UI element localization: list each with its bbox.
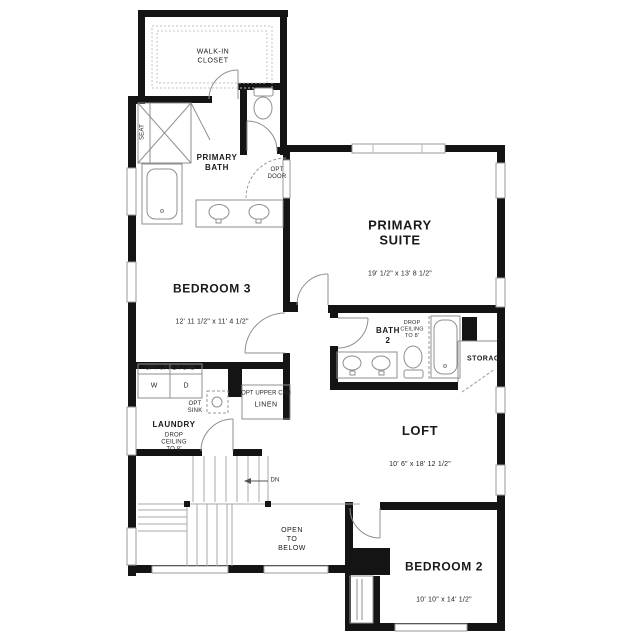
room-dims: 19' 1/2" x 13' 8 1/2" [368, 271, 432, 280]
room-label-bedroom-3: BEDROOM 3 12' 11 1/2" x 11' 4 1/2" [173, 263, 251, 348]
shower-seat-label: SEAT [140, 124, 147, 140]
opt-door-label: OPT DOOR [268, 167, 287, 181]
opt-sink-label: OPT SINK [188, 401, 203, 415]
closet-bedroom2 [350, 576, 373, 623]
washer-label: W [151, 383, 158, 392]
toilet-bath2 [404, 346, 423, 378]
room-label-bath-2: BATH 2 [376, 326, 400, 346]
drop-ceiling-note-bath2: DROP CEILING TO 8' [400, 320, 423, 339]
room-dims: 10' 10" x 14' 1/2" [405, 597, 483, 606]
vanity-primary [196, 200, 283, 227]
floor-plan-drawing [0, 0, 640, 640]
room-dims: 10' 6" x 18' 12 1/2" [389, 461, 451, 470]
opt-upper-cab-label-linen: OPT UPPER CAB [241, 390, 291, 398]
stairs-down-label: DN [270, 478, 279, 485]
room-name: BEDROOM 3 [173, 283, 251, 297]
room-name: BEDROOM 2 [405, 561, 483, 575]
bathtub-primary [142, 164, 182, 224]
room-label-loft: LOFT 10' 6" x 18' 12 1/2" [389, 404, 451, 490]
vanity-bath2 [337, 352, 397, 378]
room-name: PRIMARY SUITE [368, 219, 432, 249]
opt-upper-cab-label-laundry: OPT UPPER CAB [145, 365, 195, 373]
room-label-storage: STORAGE [467, 356, 505, 365]
room-label-linen: LINEN [254, 402, 277, 411]
room-name: LOFT [389, 424, 451, 439]
dryer-label: D [183, 383, 188, 392]
room-label-primary-suite: PRIMARY SUITE 19' 1/2" x 13' 8 1/2" [368, 199, 432, 300]
toilet-wc [254, 88, 273, 119]
drop-ceiling-note-laundry: DROP CEILING TO 8' [161, 433, 186, 454]
room-label-bedroom-2: BEDROOM 2 10' 10" x 14' 1/2" [405, 541, 483, 626]
room-label-walk-in-closet: WALK-IN CLOSET [197, 48, 229, 66]
room-label-laundry: LAUNDRY [152, 420, 195, 430]
room-label-open-to-below: OPEN TO BELOW [278, 527, 306, 553]
room-dims: 12' 11 1/2" x 11' 4 1/2" [173, 319, 251, 328]
stairs [138, 456, 360, 566]
floor-plan: WALK-IN CLOSET SEAT PRIMARY BATH OPT DOO… [0, 0, 640, 640]
room-label-primary-bath: PRIMARY BATH [197, 153, 238, 173]
opt-sink-fixture [207, 391, 228, 413]
bathtub-bath2 [429, 316, 460, 380]
